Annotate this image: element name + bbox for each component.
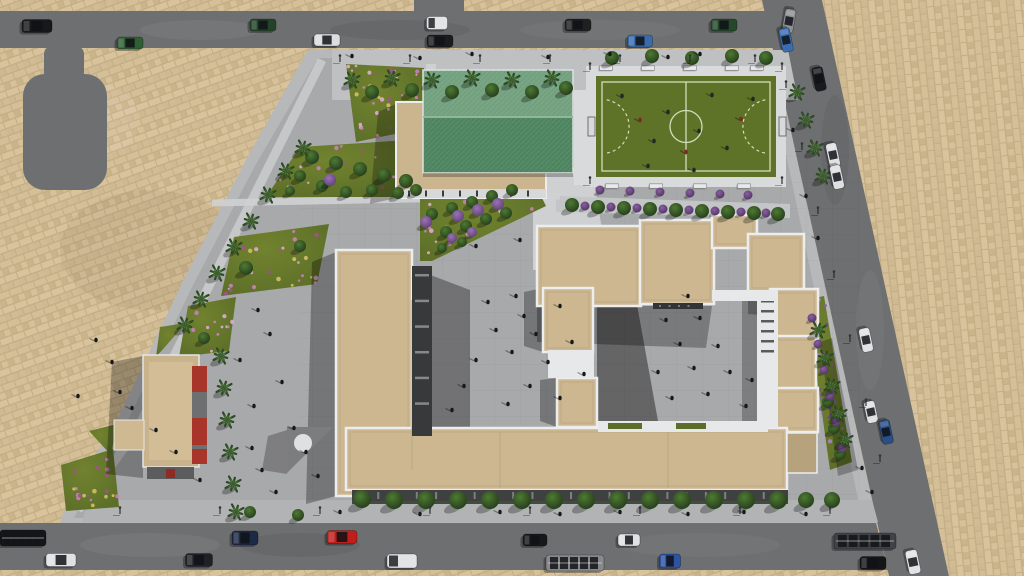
person-body [450,408,453,413]
facade-window [678,305,680,307]
palm-crown [823,356,826,359]
car-hood [252,21,257,30]
flower [415,74,417,76]
facade-window [377,492,379,499]
entrance-door [166,469,175,478]
lamp-head [754,54,757,57]
lamp-shadow [873,463,880,464]
person-body [76,394,79,399]
tree-canopy [617,201,631,215]
flower [254,247,258,251]
van-windshield [429,18,435,28]
bush-canopy [596,186,605,195]
goal-right [779,117,786,136]
person-body [268,332,271,337]
walkway-canopy-horizontal [712,290,778,301]
flower [298,279,300,281]
lamp-head [219,506,222,509]
person-body [670,396,673,401]
tree-canopy [294,170,306,182]
bush-canopy [607,203,616,212]
gym-eave-shadow [423,173,573,177]
lamp-shadow [775,71,782,72]
lamp-shadow [859,407,866,408]
gym-field-link [574,90,588,185]
lamp-head [319,506,322,509]
tree-canopy [725,49,739,63]
tree-canopy [641,491,659,509]
vehicle-bus-17 [0,530,46,548]
tree-canopy [399,174,413,188]
tree-canopy [645,49,659,63]
tree-canopy [239,261,253,275]
lamp-shadow [733,515,740,516]
flower [351,70,353,72]
vehicle-car-19 [183,554,213,569]
tree-canopy [769,491,787,509]
lamp-head [801,142,804,145]
car-glass [908,557,919,567]
facade-window [531,492,533,499]
building-east-mid [772,336,816,394]
tree-canopy [292,509,304,521]
flower [224,292,228,296]
person-body [698,316,701,321]
bush-canopy [633,204,642,213]
person-body [256,308,259,313]
palm-crown [219,354,222,357]
building-center-block-2 [557,378,597,427]
flower [216,333,219,336]
lamp-head [865,398,868,401]
person-body [816,236,819,241]
flower [820,397,823,400]
vehicle-car-28 [858,557,887,572]
bush-canopy [711,207,720,216]
facade-window [415,325,429,328]
car-glass [337,532,348,542]
flower [206,326,209,329]
car-glass [625,536,633,545]
flower [346,65,350,69]
flower [415,69,419,73]
vehicle-car-21 [325,531,358,546]
vehicle-car-6 [563,19,592,33]
bush-canopy [581,202,590,211]
bus-roof-stripe [836,540,894,542]
palm-crown [470,76,473,79]
vehicle-car-1 [115,37,144,51]
cast-shadow-8 [540,378,557,427]
car-glass [636,37,645,46]
facade-window [669,305,671,307]
person-body [546,360,549,365]
tree-canopy [559,81,573,95]
person-body [474,358,477,363]
vehicle-van-22 [385,554,418,570]
lamp-shadow [423,515,430,516]
facade-window [628,492,630,499]
flower [268,270,271,273]
tree-canopy [525,85,539,99]
flower [210,350,213,353]
lamp-head [689,54,692,57]
tree-canopy [685,51,699,65]
person-body [518,238,521,243]
bench-seat [726,66,739,71]
flower [90,499,93,502]
person-body [522,314,525,319]
car-hood [713,21,718,30]
vehicle-car-2 [248,19,277,33]
top-road-stub [414,0,464,13]
flower [334,146,338,150]
person-body [118,390,121,395]
flower [229,284,233,288]
lamp-shadow [543,63,550,64]
bench-seat [606,184,619,189]
person-body [94,338,97,343]
tree-canopy [771,207,785,221]
flower [102,456,104,458]
tree-canopy [420,216,432,228]
facade-window [435,492,437,499]
flower [376,73,378,75]
player-body [666,110,670,115]
person-body [791,128,794,133]
flower [92,489,97,494]
bush-canopy [762,209,771,218]
flower [361,148,364,151]
tree-canopy [452,210,464,222]
car-glass [240,533,249,544]
vehicle-car-0 [20,20,53,35]
lamp-shadow [213,515,220,516]
facade-window [688,305,690,307]
person-body [474,244,477,249]
car-glass [573,21,582,30]
lamp-shadow [313,515,320,516]
car-hood [187,555,192,565]
lamp-head [817,206,820,209]
person-body [510,350,513,355]
person-body [154,428,157,433]
palm-crown [266,193,269,196]
flower [194,311,198,315]
lamp-shadow [843,343,850,344]
sports-field [586,66,786,187]
palm-crown [804,118,807,121]
tree-canopy [366,184,378,196]
vehicle-car-8 [709,19,738,33]
lamp-shadow [333,63,340,64]
person-body [804,194,807,199]
car-hood [119,39,124,48]
person-body [804,512,807,517]
person-body [274,490,277,495]
lamp-head [739,506,742,509]
tree-canopy [480,213,492,225]
lamp-head [479,54,482,57]
tree-canopy [705,491,723,509]
palm-crown [510,78,513,81]
lamp-head [549,54,552,57]
tree-canopy [449,491,467,509]
flower [293,237,297,241]
flower [248,249,252,253]
person-body [110,360,113,365]
person-body [666,55,669,60]
road-blotch-2 [520,20,680,40]
flower [380,97,384,101]
tree-canopy [305,150,319,164]
entrance-awning [192,418,207,445]
tree-canopy [198,332,210,344]
lamp-head [833,270,836,273]
player-body [652,139,656,144]
person-body [692,366,695,371]
cast-shadow-10 [742,296,757,428]
player-body [751,97,755,102]
facade-window [415,300,429,303]
vehicle-car-23 [521,534,548,548]
flower [344,162,346,164]
person-body [558,512,561,517]
person-body [462,384,465,389]
palm-crown [225,418,228,421]
facade-window [659,305,661,307]
person-body [260,468,263,473]
person-body [250,446,253,451]
lamp-shadow [748,63,755,64]
tree-canopy [591,200,605,214]
car-glass [56,555,67,565]
tree-canopy [500,207,512,219]
palm-crown [301,146,304,149]
car-glass [666,556,674,567]
tree-canopy [365,85,379,99]
tree-canopy [485,83,499,97]
car-hood [525,536,530,545]
vehicle-car-25 [616,534,641,548]
tree-canopy [759,51,773,65]
person-body [618,510,621,515]
lamp-head [829,506,832,509]
car-hood [429,37,434,46]
lamp-head [589,176,592,179]
person-body [686,512,689,517]
palm-crown [199,297,202,300]
lamp-shadow [775,185,782,186]
person-body [238,358,241,363]
vehicle-car-3 [312,34,341,48]
flower [340,145,343,148]
facade-window [724,492,726,499]
person-body [316,474,319,479]
palm-crown [813,146,816,149]
flower [87,495,89,497]
bush-canopy [686,189,695,198]
person-body [174,450,177,455]
car-hood [620,536,624,545]
person-body [304,450,307,455]
palm-crown [837,412,840,415]
person-body [514,294,517,299]
car-glass [435,37,444,46]
tree-canopy [747,206,761,220]
tree-canopy [385,491,403,509]
person-body [470,52,473,57]
flower [415,96,418,99]
bench-seat [694,184,707,189]
flower [191,328,195,332]
north-a-vents [653,303,703,309]
car-glass [784,16,793,26]
tree-canopy [643,202,657,216]
facade-window [570,492,572,499]
person-body [686,294,689,299]
tree-canopy [492,198,504,210]
tree-canopy [447,233,457,243]
car-glass [531,536,540,545]
canopy-stair-tick [761,320,774,323]
tree-canopy [506,184,518,196]
car-glass [194,555,204,565]
facade-window [415,351,429,354]
lamp-head [879,454,882,457]
culdesac-bulb [23,74,107,190]
lamp-head [781,176,784,179]
person-body [528,384,531,389]
bush-canopy [737,208,746,217]
flower [304,256,308,260]
planter [608,423,642,429]
lamp-shadow [583,185,590,186]
flower [428,203,431,206]
gym-window-slit [527,191,529,197]
person-body [252,404,255,409]
person-body [506,402,509,407]
car-glass [125,39,134,48]
building-south-east [787,433,817,473]
road-blotch-5 [620,533,780,557]
flower [317,166,321,170]
person-body [534,332,537,337]
flower [372,102,375,105]
lamp-shadow [633,515,640,516]
tree-canopy [329,156,343,170]
flower [359,123,363,127]
flower [824,304,827,307]
entrance-roof-inner [149,362,193,460]
flower [276,277,281,282]
tree-canopy [377,168,391,182]
flower [360,127,363,130]
entrance-west-canopy [114,420,144,450]
car-hood [316,36,321,45]
facade-window [415,377,429,380]
tree-canopy [695,204,709,218]
tree-canopy [410,184,422,196]
tree-canopy [472,204,484,216]
flower [281,247,284,250]
facade-window [415,274,429,277]
palm-crown [231,482,234,485]
aerial-render-canvas [0,0,1024,576]
lamp-shadow [823,515,830,516]
lamp-shadow [795,151,802,152]
lamp-shadow [523,515,530,516]
tree-canopy [721,205,735,219]
flower [367,71,371,75]
flower [292,230,295,233]
palm-crown [816,328,819,331]
bench [737,184,751,190]
vehicle-car-26 [657,554,681,570]
flower [424,230,427,233]
person-body [350,54,353,59]
person-body [494,328,497,333]
lamp-shadow [779,89,786,90]
gym-window-slit [476,191,478,197]
site-plan-rendering [0,0,1024,576]
person-body [744,404,747,409]
flower [821,412,824,415]
person-body [570,340,573,345]
vehicle-car-7 [625,35,653,49]
bush-canopy [814,340,823,349]
lamp-head [429,506,432,509]
tree-canopy [798,492,814,508]
lamp-shadow [811,215,818,216]
bush-canopy [626,187,635,196]
person-body [608,52,611,57]
car-hood [48,555,54,565]
facade-window [415,402,429,405]
cast-shadow-11 [106,356,143,478]
person-body [280,380,283,385]
van-windshield [389,556,398,567]
flower [388,66,390,68]
bench [693,184,707,190]
vehicle-car-18 [44,554,77,569]
palm-crown [430,78,433,81]
player-body [646,164,650,169]
vehicle-bus-24 [544,555,605,573]
palm-crown [390,76,393,79]
goal-left [588,117,595,136]
entrance-awning [192,449,207,464]
lamp-head [119,506,122,509]
entrance-awning [192,366,207,392]
person-body [582,372,585,377]
flower [435,241,437,243]
vehicle-van-4 [424,17,448,32]
flower [363,86,366,89]
tree-canopy [669,203,683,217]
flower [228,288,230,290]
flower [291,284,294,287]
person-body [706,392,709,397]
flower [314,233,318,237]
tree-canopy [673,491,691,509]
tree-canopy [244,506,256,518]
vehicle-car-20 [230,531,259,547]
tree-canopy [824,492,840,508]
car-hood [24,21,30,31]
flower [72,487,75,490]
palm-crown [222,386,225,389]
